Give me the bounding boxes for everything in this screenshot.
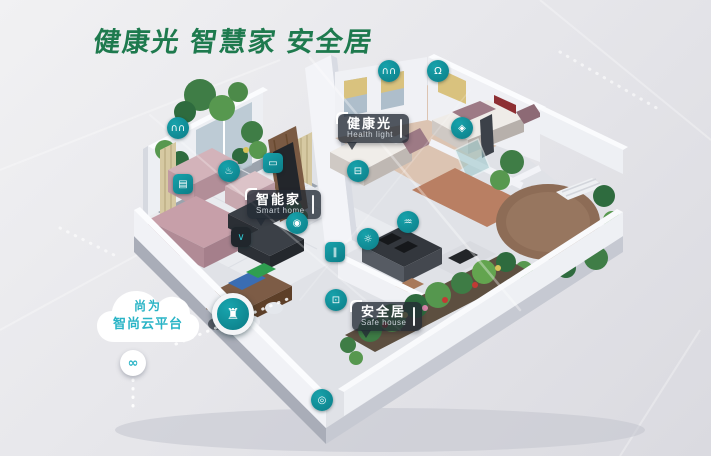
label-health-light-zh: 健康光: [347, 117, 393, 131]
cloud-platform-badge: 尚为 智尚云平台: [94, 284, 202, 356]
label-pointer: [347, 142, 357, 150]
label-accent-bar: [400, 119, 402, 138]
label-smart-home: 智能家 Smart home: [247, 190, 321, 219]
page-title: 健康光 智慧家 安全居: [91, 20, 376, 59]
label-corner-accent: [350, 300, 362, 312]
label-smart-home-zh: 智能家: [256, 193, 305, 207]
cloud-brand-name: 尚为: [94, 297, 202, 314]
label-safe-house-en: Safe house: [361, 319, 406, 327]
label-safe-house: 安全居 Safe house: [352, 302, 422, 331]
label-health-light-en: Health light: [347, 131, 393, 139]
label-corner-accent: [336, 112, 348, 124]
house-render: [0, 0, 711, 456]
label-smart-home-en: Smart home: [256, 207, 305, 215]
label-accent-bar: [413, 307, 415, 326]
promo-scene: 健康光 智慧家 安全居 健康光 Health light 智能家 Smart h…: [0, 0, 711, 456]
label-safe-house-zh: 安全居: [361, 305, 406, 319]
label-pointer: [256, 218, 266, 226]
label-health-light: 健康光 Health light: [338, 114, 409, 143]
label-accent-bar: [312, 195, 314, 214]
label-pointer: [361, 330, 371, 338]
label-corner-accent: [245, 188, 257, 200]
cloud-platform-name: 智尚云平台: [94, 313, 202, 332]
